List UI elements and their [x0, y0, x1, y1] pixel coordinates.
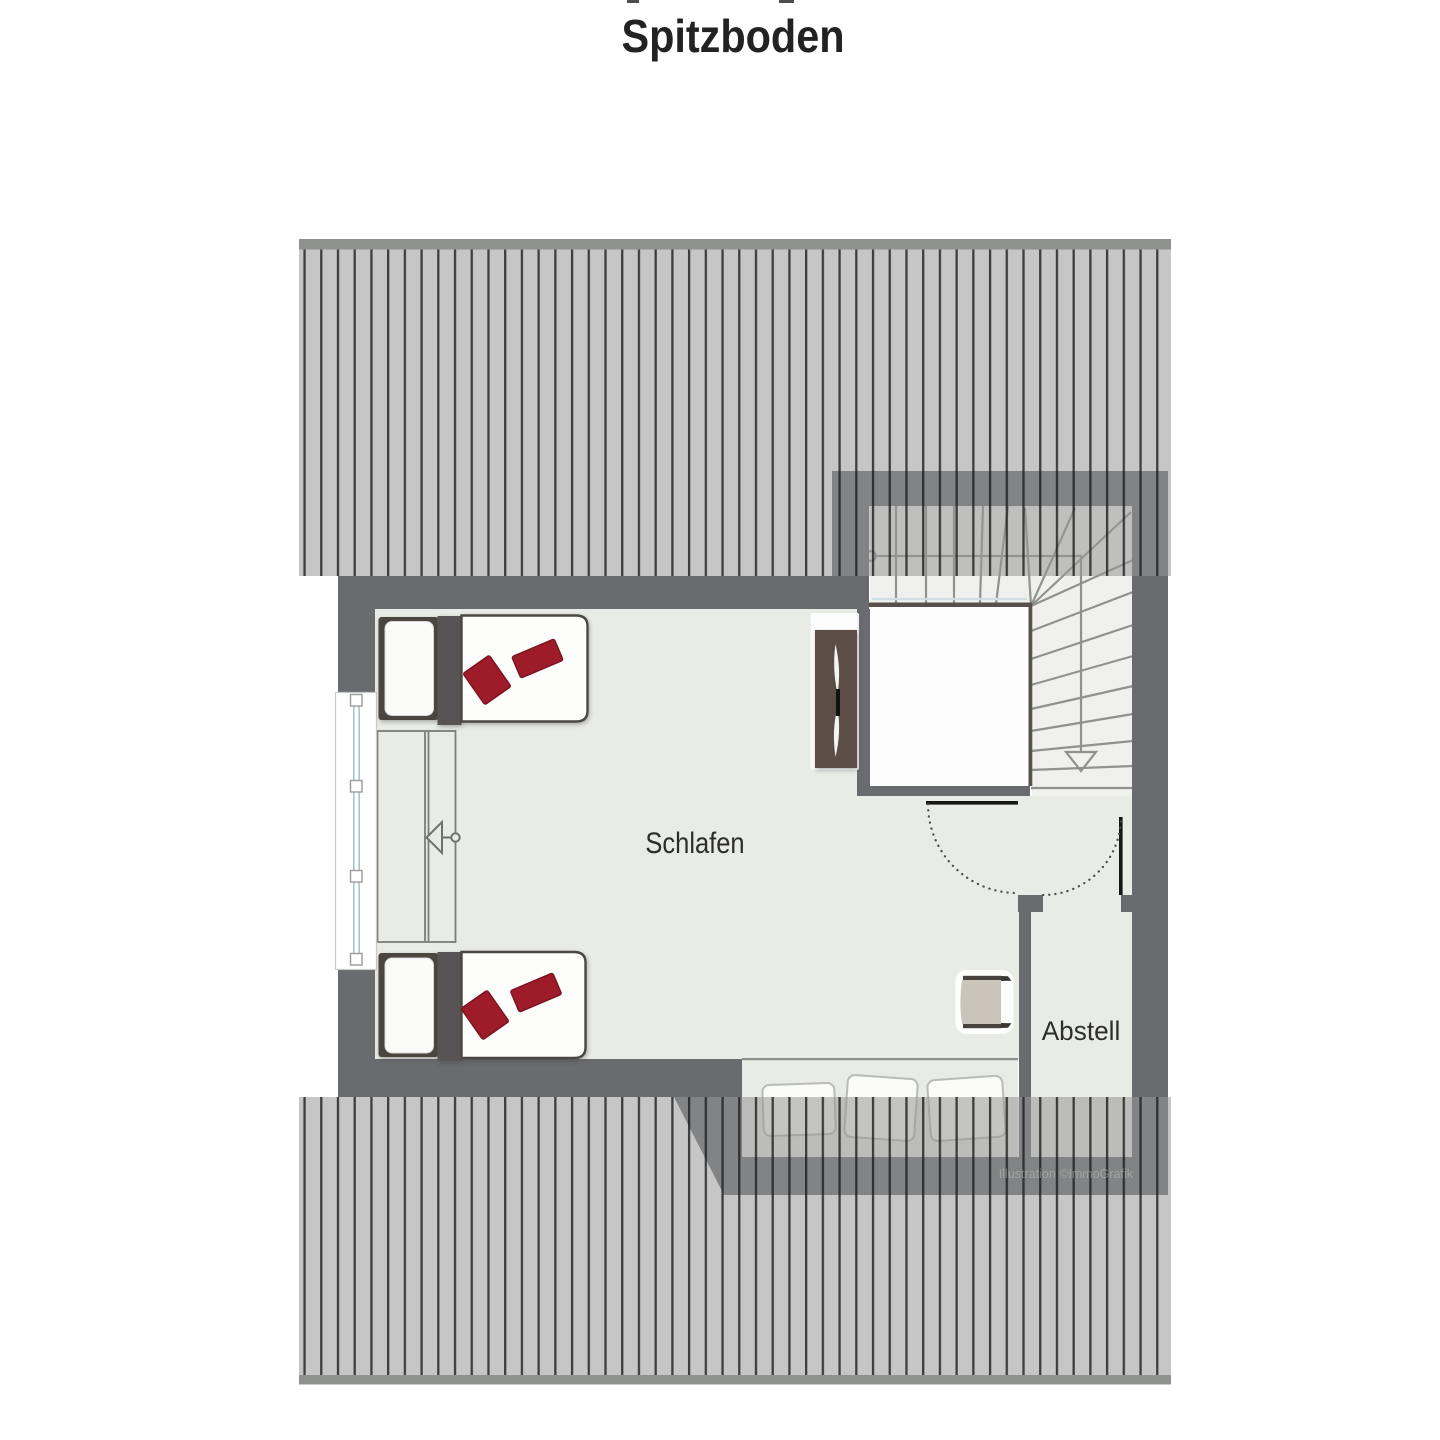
svg-text:Spitzboden: Spitzboden [621, 11, 844, 63]
svg-text:Schlafen: Schlafen [645, 826, 744, 859]
svg-text:Abstell: Abstell [1042, 1016, 1121, 1046]
svg-text:Illustration ©ImmoGrafik: Illustration ©ImmoGrafik [999, 1167, 1134, 1181]
